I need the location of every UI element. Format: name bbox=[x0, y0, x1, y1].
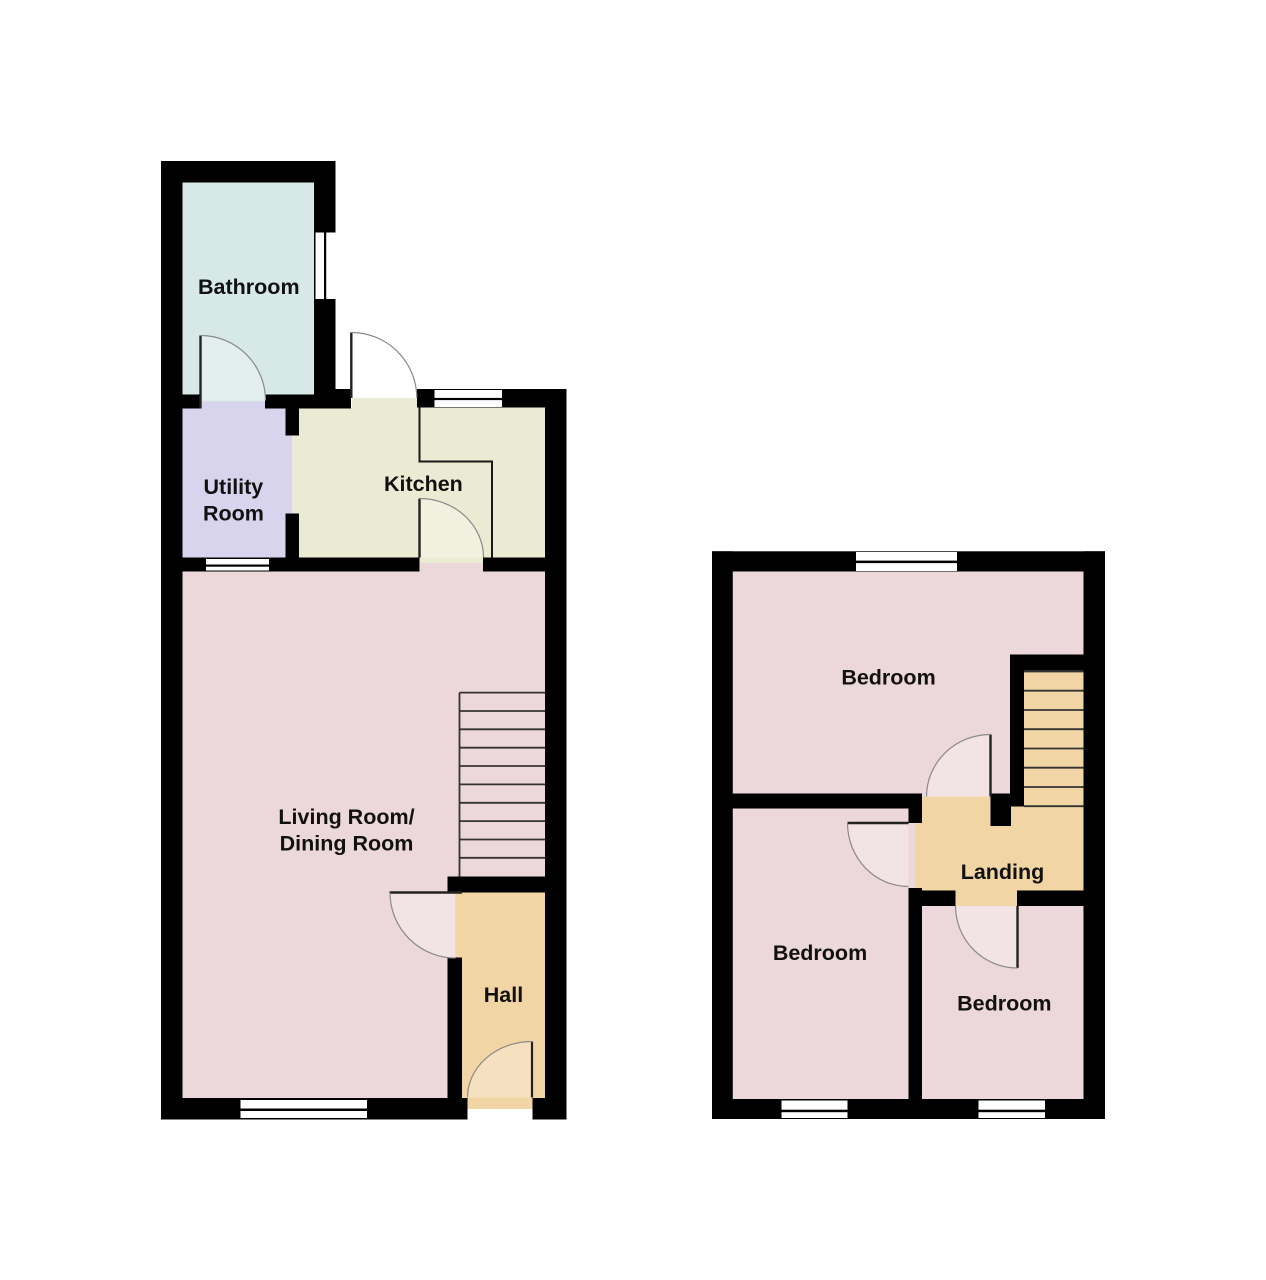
svg-text:Hall: Hall bbox=[484, 983, 523, 1007]
svg-text:Living Room/: Living Room/ bbox=[278, 805, 414, 829]
svg-text:Kitchen: Kitchen bbox=[384, 472, 463, 496]
svg-text:Room: Room bbox=[203, 501, 264, 525]
svg-text:Dining Room: Dining Room bbox=[280, 832, 414, 856]
svg-text:Bedroom: Bedroom bbox=[773, 941, 867, 965]
svg-text:Utility: Utility bbox=[204, 475, 264, 499]
svg-text:Landing: Landing bbox=[961, 860, 1045, 884]
svg-text:Bedroom: Bedroom bbox=[841, 666, 935, 690]
svg-text:Bedroom: Bedroom bbox=[957, 992, 1051, 1016]
svg-text:Bathroom: Bathroom bbox=[198, 275, 300, 299]
